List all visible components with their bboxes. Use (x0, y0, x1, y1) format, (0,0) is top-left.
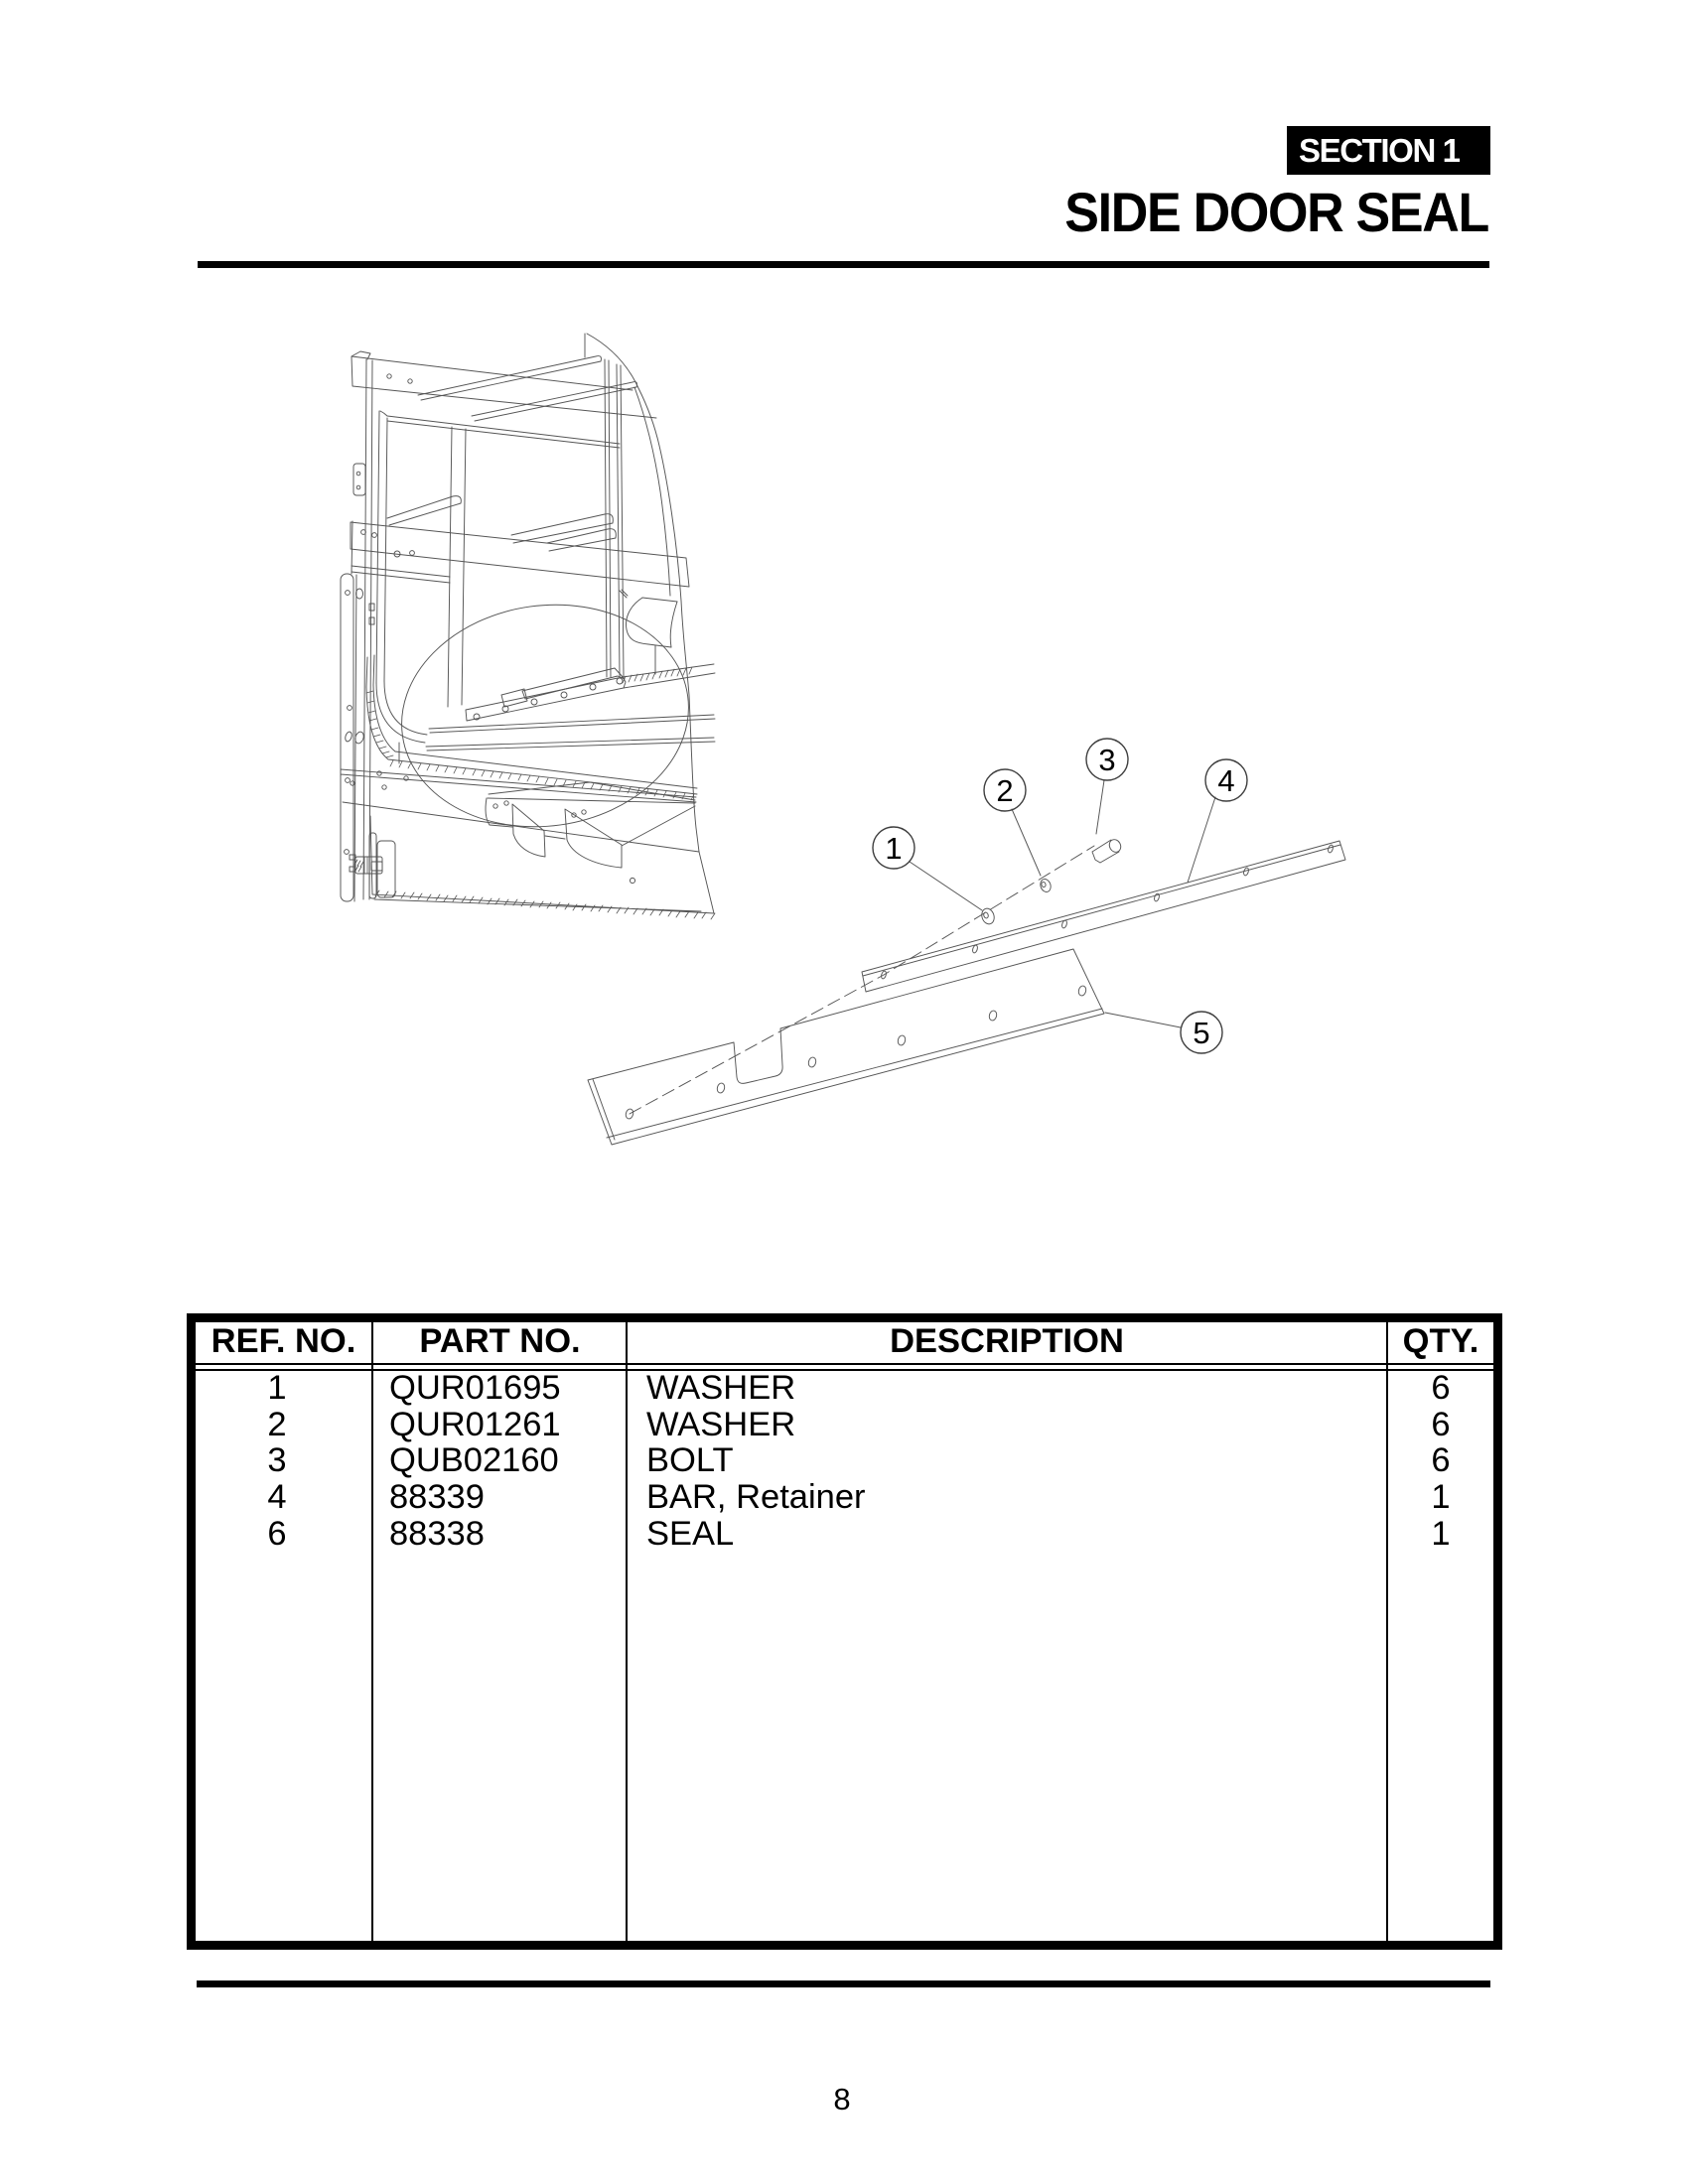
svg-text:2: 2 (996, 773, 1013, 808)
svg-text:1: 1 (885, 831, 902, 866)
svg-text:5: 5 (1193, 1016, 1209, 1050)
svg-text:3: 3 (1098, 743, 1115, 777)
svg-text:4: 4 (1217, 763, 1234, 798)
